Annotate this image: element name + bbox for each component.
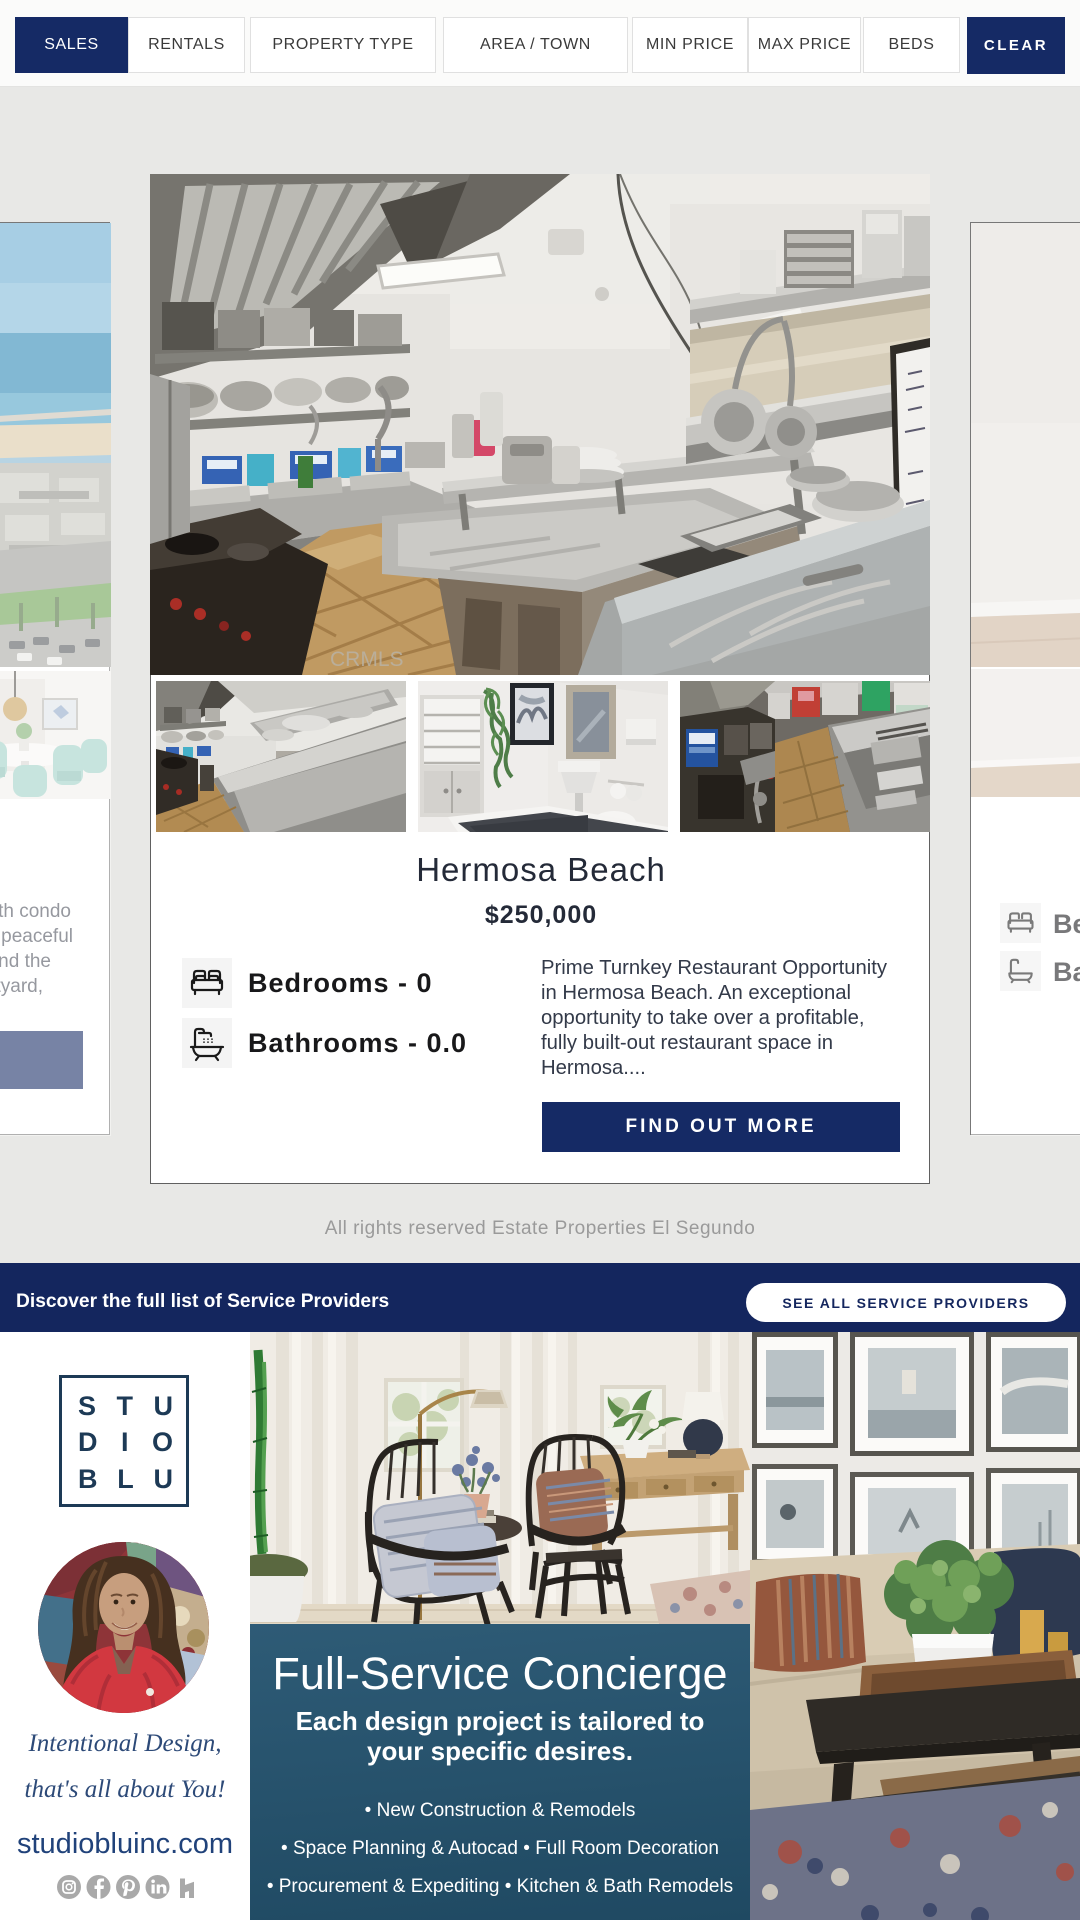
svg-text:CRMLS: CRMLS: [330, 648, 404, 671]
